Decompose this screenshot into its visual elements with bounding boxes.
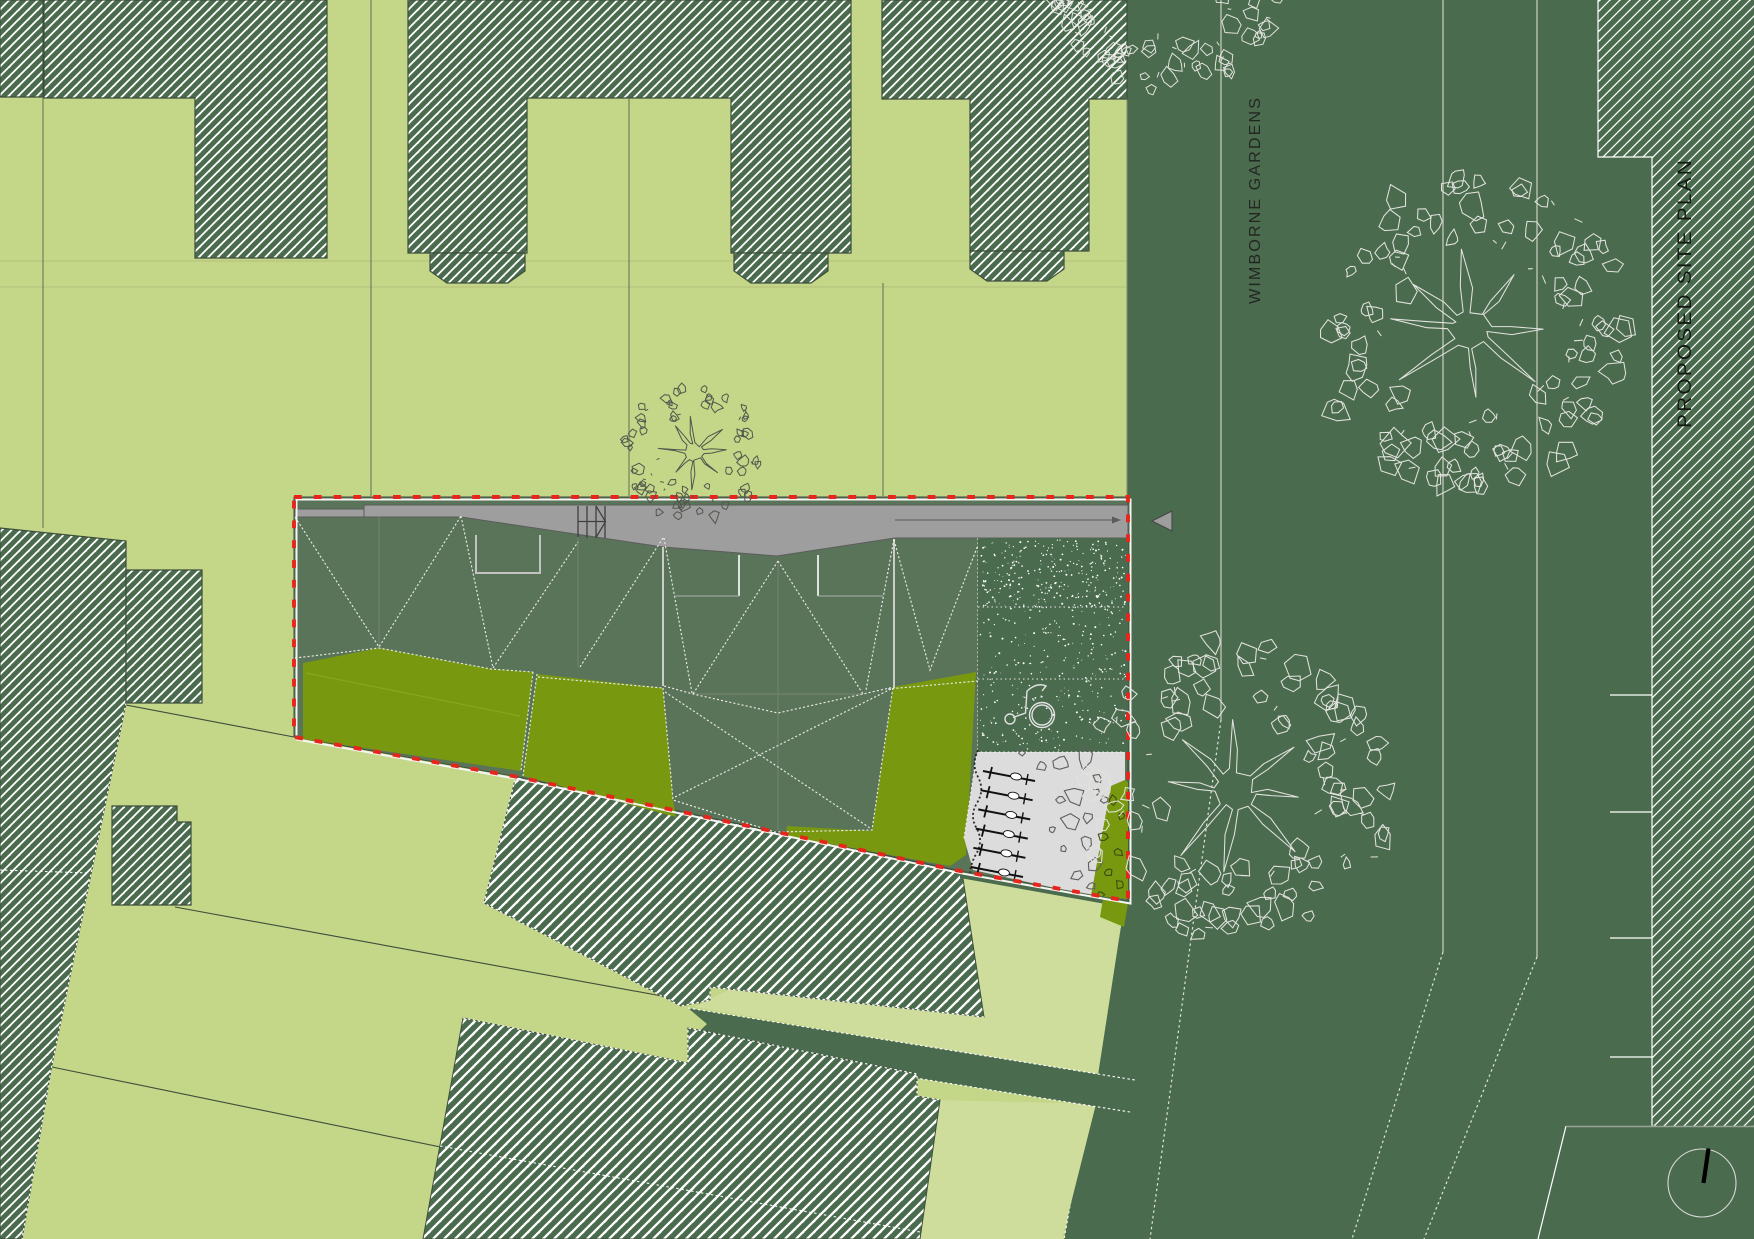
- svg-text:PROPOSED SITE PLAN: PROPOSED SITE PLAN: [1675, 158, 1696, 428]
- svg-text:WIMBORNE GARDENS: WIMBORNE GARDENS: [1247, 96, 1264, 304]
